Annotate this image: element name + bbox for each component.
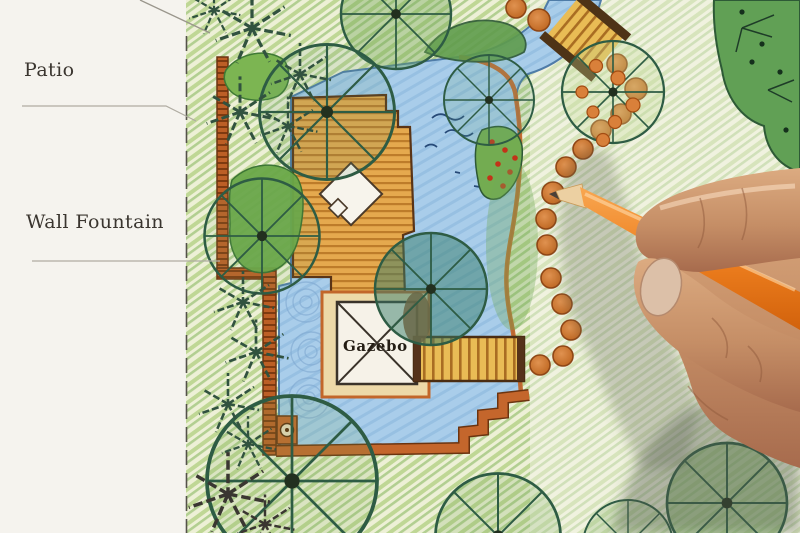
gazebo-label: Gazebo: [343, 337, 408, 355]
patio-leader-line: [22, 106, 196, 121]
patio-label: Patio: [24, 59, 74, 81]
planting-bed: [486, 160, 538, 330]
wall-fountain-label: Wall Fountain: [26, 211, 164, 233]
garden-plan-drawing: [0, 0, 800, 533]
photo-of-garden-plan: Patio Wall Fountain Gazebo const data = …: [0, 0, 800, 533]
